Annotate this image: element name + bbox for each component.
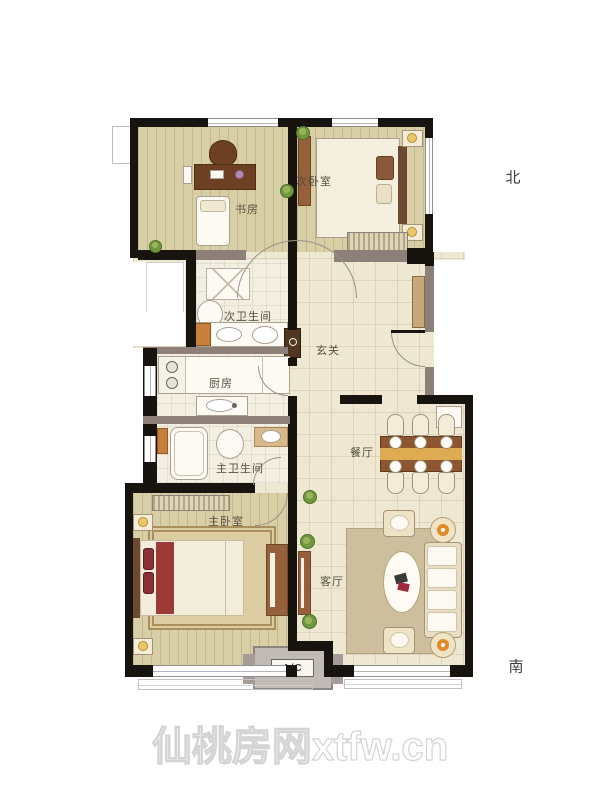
wall-foyer-right-upper	[425, 266, 434, 332]
sofa-cushion-2	[427, 568, 457, 588]
bedroom1-tv	[270, 553, 275, 607]
wall-spine-c	[288, 396, 297, 483]
room-label-living: 客厅	[320, 573, 344, 589]
plate-5	[414, 460, 427, 473]
wall-study-bottom-a	[138, 250, 190, 260]
study-paper	[210, 170, 224, 179]
armchair-top-cushion	[390, 515, 409, 531]
room-label-study: 书房	[235, 201, 259, 217]
plant-icon-study-corner	[149, 240, 162, 253]
plant-icon-living-bottom	[302, 614, 317, 629]
tv-board	[298, 551, 311, 615]
exterior-ledge	[146, 262, 184, 312]
dining-chair-2	[412, 414, 429, 436]
bedroom2-wardrobe	[347, 232, 408, 252]
watermark: 仙桃房网xtfw.cn	[0, 714, 600, 772]
bedroom1-bay-sill	[138, 679, 313, 690]
study-chair	[209, 140, 237, 166]
living-window	[354, 665, 450, 677]
bath1-tub-inner	[174, 431, 204, 476]
bedroom1-red-throw	[156, 542, 174, 614]
room-label-bath1: 主卫生间	[216, 460, 264, 476]
wall-spine-d	[288, 493, 297, 641]
bath2-sink	[216, 327, 242, 342]
bedroom2-headboard	[398, 146, 407, 224]
stove-burner-1	[166, 361, 178, 373]
kitchen-window	[144, 366, 156, 396]
plant-icon-bedroom2-top	[296, 126, 310, 140]
plant-icon-bedroom2-left	[280, 184, 294, 198]
tv-screen	[301, 558, 304, 608]
wall-foyer-right-lower	[425, 367, 434, 397]
wall-study-bottom-b	[190, 250, 246, 260]
bedroom2-top-window	[332, 118, 378, 127]
dining-chair-1	[387, 414, 404, 436]
study-shelf-items	[183, 166, 192, 184]
study-flower-vase	[235, 170, 244, 179]
compass-south-label: 南	[508, 656, 523, 677]
sofa-cushion-3	[427, 590, 457, 610]
bedroom2-lamp-bottom	[407, 227, 417, 237]
dining-chair-3	[438, 414, 455, 436]
sofa-cushion-4	[427, 612, 457, 632]
wall-bath2-left	[186, 250, 196, 348]
wall-spine-b	[288, 358, 297, 366]
bedroom1-pillow-1	[143, 548, 154, 570]
plate-4	[389, 460, 402, 473]
washing-machine-door-icon	[289, 338, 297, 346]
bath1-window	[144, 436, 156, 462]
wall-spine-post	[288, 483, 297, 493]
plant-icon-hall-dining	[303, 490, 317, 504]
bath1-sink	[261, 430, 281, 443]
bedroom2-lamp-top	[407, 133, 417, 143]
entry-cabinet	[412, 276, 425, 328]
room-label-foyer: 玄关	[316, 342, 340, 358]
wall-right-main	[465, 395, 473, 677]
bedroom1-pillow-2	[143, 572, 154, 594]
bedroom1-lamp-top	[138, 517, 148, 527]
wall-foyer-right-post	[425, 252, 434, 266]
bedroom1-blanket-fold	[225, 541, 226, 615]
wall-kitchen-bottom	[143, 416, 290, 424]
exterior-patch-right	[434, 260, 465, 396]
bedroom1-wardrobe	[152, 495, 230, 511]
bedroom2-pillow-light	[376, 184, 392, 204]
study-desk	[194, 164, 256, 190]
wall-bedroom1-left	[125, 483, 133, 677]
bath1-cabinet	[157, 428, 168, 454]
plate-3	[440, 436, 453, 449]
exterior-patch-left-lower	[105, 348, 143, 486]
dining-chair-5	[412, 472, 429, 494]
armchair-bottom-cushion	[390, 632, 409, 648]
side-table-top-dot	[441, 528, 445, 532]
bath1-toilet	[216, 429, 244, 459]
room-label-bedroom1: 主卧室	[208, 513, 244, 529]
bedroom2-right-window	[425, 138, 433, 214]
exterior-step-topleft	[112, 126, 131, 164]
wall-bedroom1-bottom-b	[286, 665, 297, 677]
wall-bedroom1-top	[125, 483, 255, 493]
bedroom1-lamp-bottom	[138, 641, 148, 651]
bedroom1-headboard	[133, 538, 140, 618]
kitchen-sink	[206, 399, 234, 412]
floorplan-canvas: A/C	[0, 0, 600, 800]
wall-living-bottom-a	[332, 665, 354, 677]
side-table-bottom-dot	[441, 643, 445, 647]
room-label-bedroom2: 次卧室	[296, 173, 332, 189]
dining-table-runner	[380, 448, 462, 460]
wall-kitchen-top	[143, 347, 288, 354]
plate-6	[440, 460, 453, 473]
compass-north-label: 北	[505, 167, 520, 188]
kitchen-faucet	[232, 403, 237, 408]
plate-2	[414, 436, 427, 449]
wall-post-bedroom2	[407, 248, 425, 264]
living-bay-sill	[344, 679, 462, 689]
bedroom1-bay-window	[153, 665, 286, 677]
wall-bedroom1-bottom-a	[125, 665, 153, 677]
dining-chair-4	[387, 472, 404, 494]
bedroom2-cabinet	[298, 136, 311, 206]
bath2-basin	[252, 326, 278, 344]
room-label-dining: 餐厅	[350, 444, 374, 460]
study-window	[208, 118, 278, 127]
room-label-kitchen: 厨房	[209, 375, 233, 391]
wall-top	[130, 118, 433, 127]
bedroom2-pillow-brown	[376, 156, 394, 180]
room-label-bath2: 次卫生间	[224, 308, 272, 324]
entry-door-leaf	[391, 330, 425, 333]
plate-1	[389, 436, 402, 449]
wall-bedroom2-bottom	[334, 250, 407, 262]
plant-icon-living-top	[300, 534, 315, 549]
dining-chair-6	[438, 472, 455, 494]
wall-dining-top-a	[340, 395, 382, 404]
sofa-cushion-1	[427, 546, 457, 566]
study-daybed-pillow	[200, 200, 226, 212]
wall-left-top	[130, 118, 138, 258]
stove-burner-2	[166, 377, 178, 389]
